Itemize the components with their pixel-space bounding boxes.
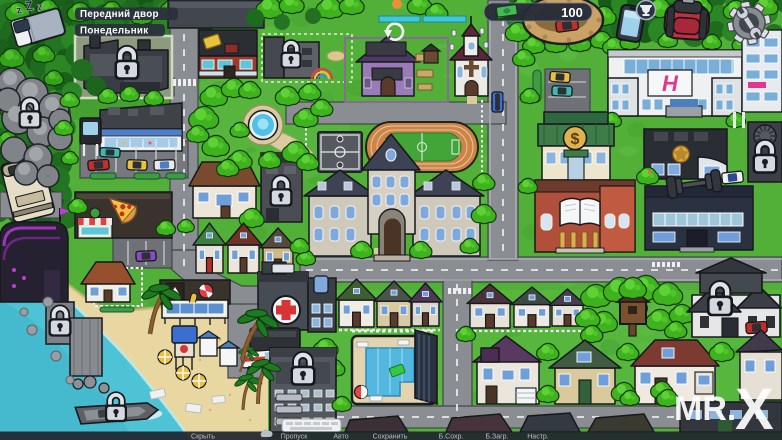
svg-text:X: X (735, 377, 774, 440)
svg-text:Б.Загр.: Б.Загр. (485, 434, 508, 440)
svg-text:Сохранить: Сохранить (373, 434, 408, 440)
svg-text:Настр.: Настр. (527, 434, 549, 440)
svg-text:MR.: MR. (674, 390, 736, 428)
svg-text:100: 100 (561, 5, 583, 20)
svg-text:H: H (662, 71, 679, 96)
svg-text:$: $ (571, 131, 580, 148)
svg-text:Пропуск: Пропуск (281, 434, 309, 440)
svg-text:Понедельник: Понедельник (80, 26, 148, 37)
svg-text:Авто: Авто (333, 434, 348, 440)
svg-text:Скрыть: Скрыть (191, 434, 215, 440)
svg-text:Б.Сохр.: Б.Сохр. (439, 434, 464, 440)
svg-text:Передний двор: Передний двор (80, 9, 159, 20)
